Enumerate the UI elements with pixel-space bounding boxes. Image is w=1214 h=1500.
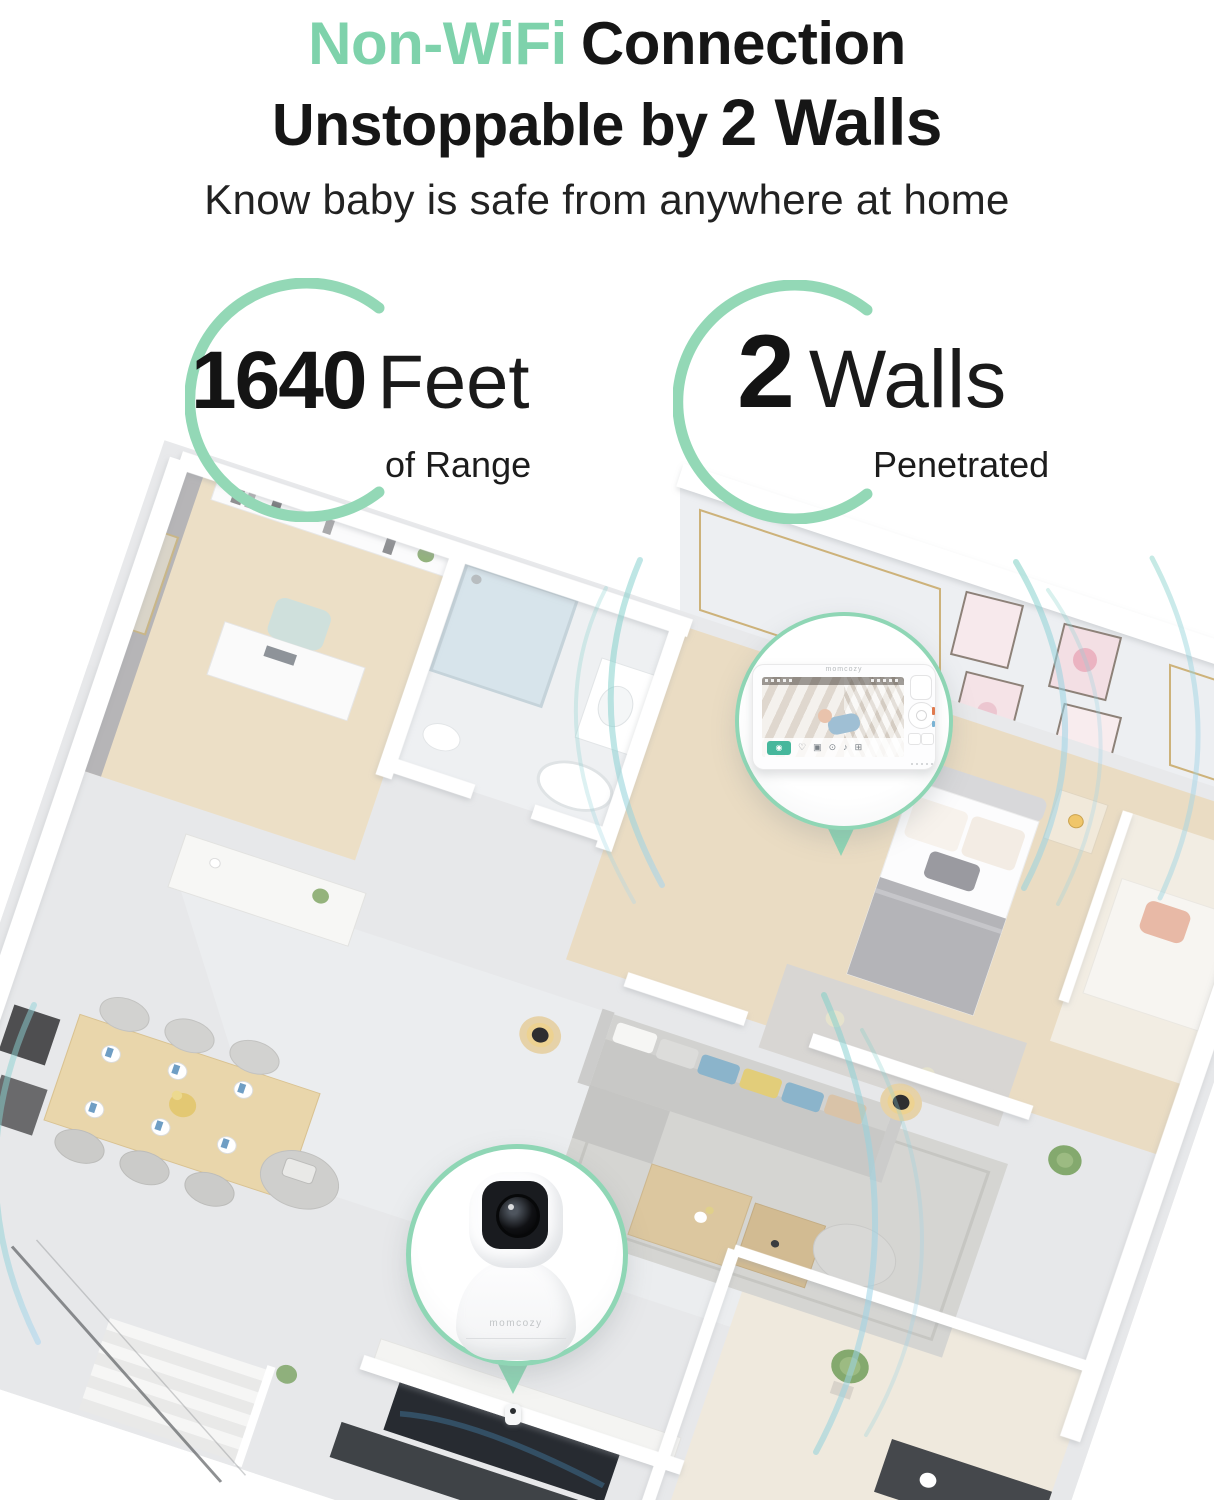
badge-value-row: 1640 Feet: [191, 340, 530, 422]
badge-value: 2: [737, 320, 793, 424]
subtitle: Know baby is safe from anywhere at home: [0, 176, 1214, 224]
floor-plan-scene: [0, 430, 1214, 1500]
camera-seam: [466, 1338, 566, 1339]
camera-brand-label: momcozy: [456, 1318, 576, 1329]
monitor-screen: ◉ ♡ ▣ ⊙ ♪ ⊞: [762, 677, 904, 757]
title-rest: Connection: [581, 10, 906, 77]
power-slider-mark: [932, 707, 935, 715]
camera-face-panel: [482, 1181, 548, 1249]
title-line2-emphasis: 2 Walls: [721, 85, 942, 159]
monitor-brand-label: momcozy: [753, 666, 935, 673]
title-line1: Non-WiFiConnection: [0, 6, 1214, 81]
walls-badge: 2 Walls Penetrated: [673, 280, 1214, 524]
record-active-icon: ◉: [767, 741, 791, 755]
monitor-toolbar: ◉ ♡ ▣ ⊙ ♪ ⊞: [762, 738, 904, 757]
badge-caption: of Range: [385, 444, 531, 486]
camera-head: [469, 1172, 563, 1268]
volume-mark: [932, 721, 935, 727]
camera-body: momcozy: [456, 1260, 576, 1360]
lens-glint: [508, 1204, 514, 1210]
status-bar: [762, 677, 904, 685]
menu-icon: ⊞: [855, 743, 863, 752]
badge-unit: Walls: [809, 339, 1006, 421]
title-line2: Unstoppable by2 Walls: [0, 83, 1214, 162]
badge-value-row: 2 Walls: [737, 320, 1006, 424]
badge-value: 1640: [191, 340, 365, 422]
baby-camera-device: momcozy: [452, 1166, 580, 1364]
wall-mounted-camera: [505, 1404, 521, 1425]
lullaby-icon: ♪: [843, 743, 848, 752]
monitor-talk-button: [921, 733, 934, 745]
monitor-power-button: [910, 675, 932, 700]
monitor-dpad-button: [908, 702, 935, 729]
badge-caption: Penetrated: [873, 444, 1049, 486]
care-icon: ♡: [798, 743, 806, 752]
video-icon: ▣: [813, 743, 822, 752]
indicator-lights: [911, 763, 913, 765]
header: Non-WiFiConnection Unstoppable by2 Walls…: [0, 0, 1214, 224]
title-line2-prefix: Unstoppable by: [272, 92, 708, 158]
location-icon: ⊙: [829, 743, 837, 752]
camera-lens-icon: [496, 1194, 540, 1238]
range-badge: 1640 Feet of Range: [185, 278, 745, 522]
title-highlight: Non-WiFi: [308, 10, 567, 77]
marketing-page: Non-WiFiConnection Unstoppable by2 Walls…: [0, 0, 1214, 1500]
baby-monitor-device: momcozy ◉ ♡ ▣ ⊙ ♪ ⊞: [752, 664, 936, 770]
monitor-volume-button: [908, 733, 921, 745]
badge-unit: Feet: [377, 345, 529, 421]
baby-head: [818, 709, 832, 723]
